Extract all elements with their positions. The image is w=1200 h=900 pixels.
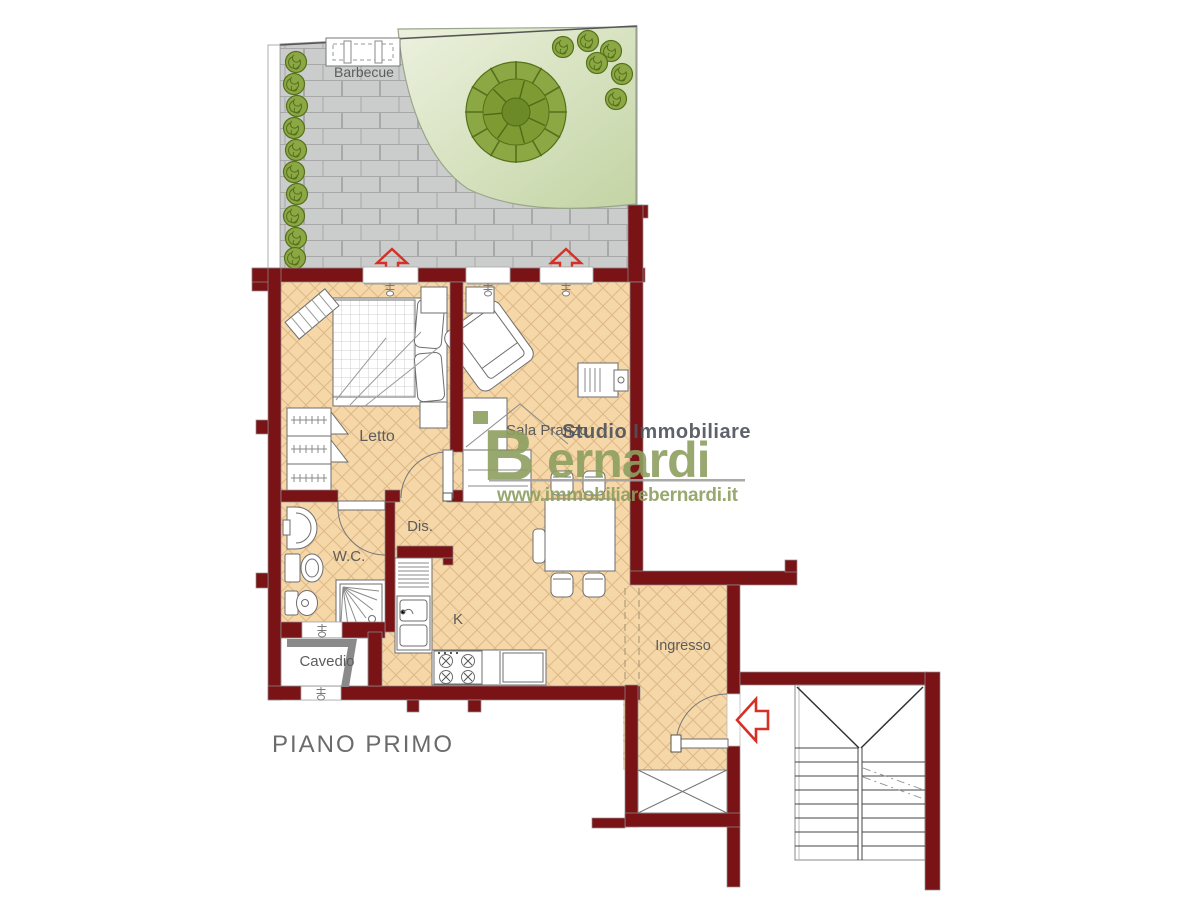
watermark-underline <box>489 479 745 482</box>
stove <box>432 650 546 685</box>
letto-label: Letto <box>359 428 395 445</box>
cavedio-vent <box>301 686 341 700</box>
terrace: Barbecue <box>268 26 637 269</box>
kitchen-label: K <box>453 611 463 628</box>
bed <box>333 298 447 406</box>
wc-label: W.C. <box>333 548 366 565</box>
nightstand <box>421 287 447 313</box>
cavedio-label: Cavedio <box>299 653 354 670</box>
bidet <box>285 591 318 616</box>
watermark: Studio Immobiliare B ernardi www.immobil… <box>473 411 751 506</box>
barbecue <box>326 38 400 66</box>
nightstand <box>420 402 447 428</box>
kitchen-counter <box>395 558 432 653</box>
floorplan-drawing: Barbecue <box>0 0 1200 900</box>
entry-arrow-icon <box>737 699 768 741</box>
big-bush <box>465 61 567 163</box>
dis-label: Dis. <box>407 518 433 535</box>
staircase <box>795 685 925 860</box>
floorplan-page: Barbecue <box>0 0 1200 900</box>
barbecue-label: Barbecue <box>334 64 394 80</box>
watermark-brand-initial: B <box>483 416 535 496</box>
terrace-left-border <box>268 45 280 268</box>
ingresso-label: Ingresso <box>655 638 711 654</box>
watermark-website: www.immobiliarebernardi.it <box>496 485 739 506</box>
toilet <box>285 554 323 582</box>
shaft-box <box>638 770 727 813</box>
cavedio-vent <box>302 622 342 638</box>
floor-title: PIANO PRIMO <box>272 731 454 758</box>
